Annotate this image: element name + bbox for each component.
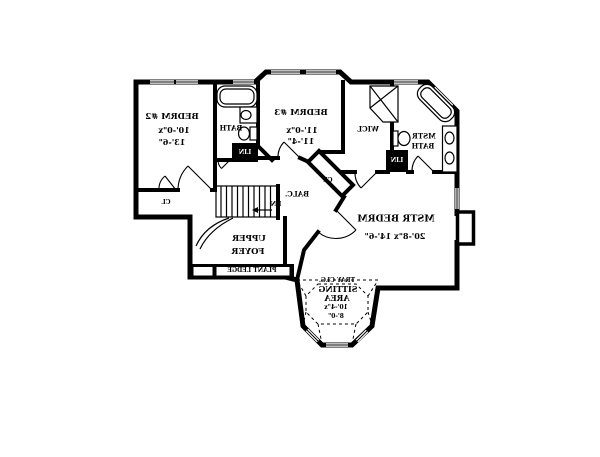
- hall-closet-label: CL: [162, 200, 171, 206]
- floor-plan-drawing: [0, 0, 600, 457]
- hall-linen-label: LIN: [239, 150, 252, 156]
- sitting-label-1: SITTING: [318, 285, 357, 293]
- master-bath-fixtures: [370, 81, 458, 172]
- mstr-bedrm-dims: 20'-8"x 14'-6": [365, 232, 426, 240]
- mstr-bedrm-label: MSTR BEDRM: [357, 214, 435, 224]
- mstr-bath-label-2: BATH: [412, 143, 435, 150]
- upper-foyer-label-1: UPPER: [232, 235, 266, 244]
- bedrm3-dim1: 11'-0"x: [286, 126, 317, 134]
- plant-ledge-label: PLANT LEDGE: [227, 268, 276, 274]
- balcony-label: BALC.: [285, 191, 309, 198]
- mstr-bath-label-1: MSTR: [412, 133, 436, 140]
- bedrm2-dim2: 13'-6": [159, 138, 186, 146]
- floor-plan-page: BEDRM #2 10'-0"x 13'-6" BATH BEDRM #3 11…: [0, 0, 600, 457]
- wicl-label: WICL: [357, 126, 379, 133]
- mstr-linen-label: LIN: [391, 158, 404, 164]
- stairs-dn-label: DN: [271, 202, 282, 208]
- bedrm2-label: BEDRM #2: [145, 113, 199, 122]
- sitting-dim1: 10'-4"x: [324, 305, 348, 311]
- bath-label: BATH: [220, 125, 243, 132]
- bedrm2-dim1: 10'-0"x: [158, 126, 189, 134]
- bedrm3-dim2: 11'-4": [288, 137, 315, 145]
- bedrm3-label: BEDRM #3: [274, 109, 328, 118]
- sitting-dim2: 8'-0": [328, 314, 344, 320]
- diag-closet-label: CL: [324, 178, 333, 184]
- sitting-label-2: AREA: [324, 294, 349, 302]
- upper-foyer-label-2: FOYER: [231, 248, 264, 257]
- fireplace: [454, 212, 474, 244]
